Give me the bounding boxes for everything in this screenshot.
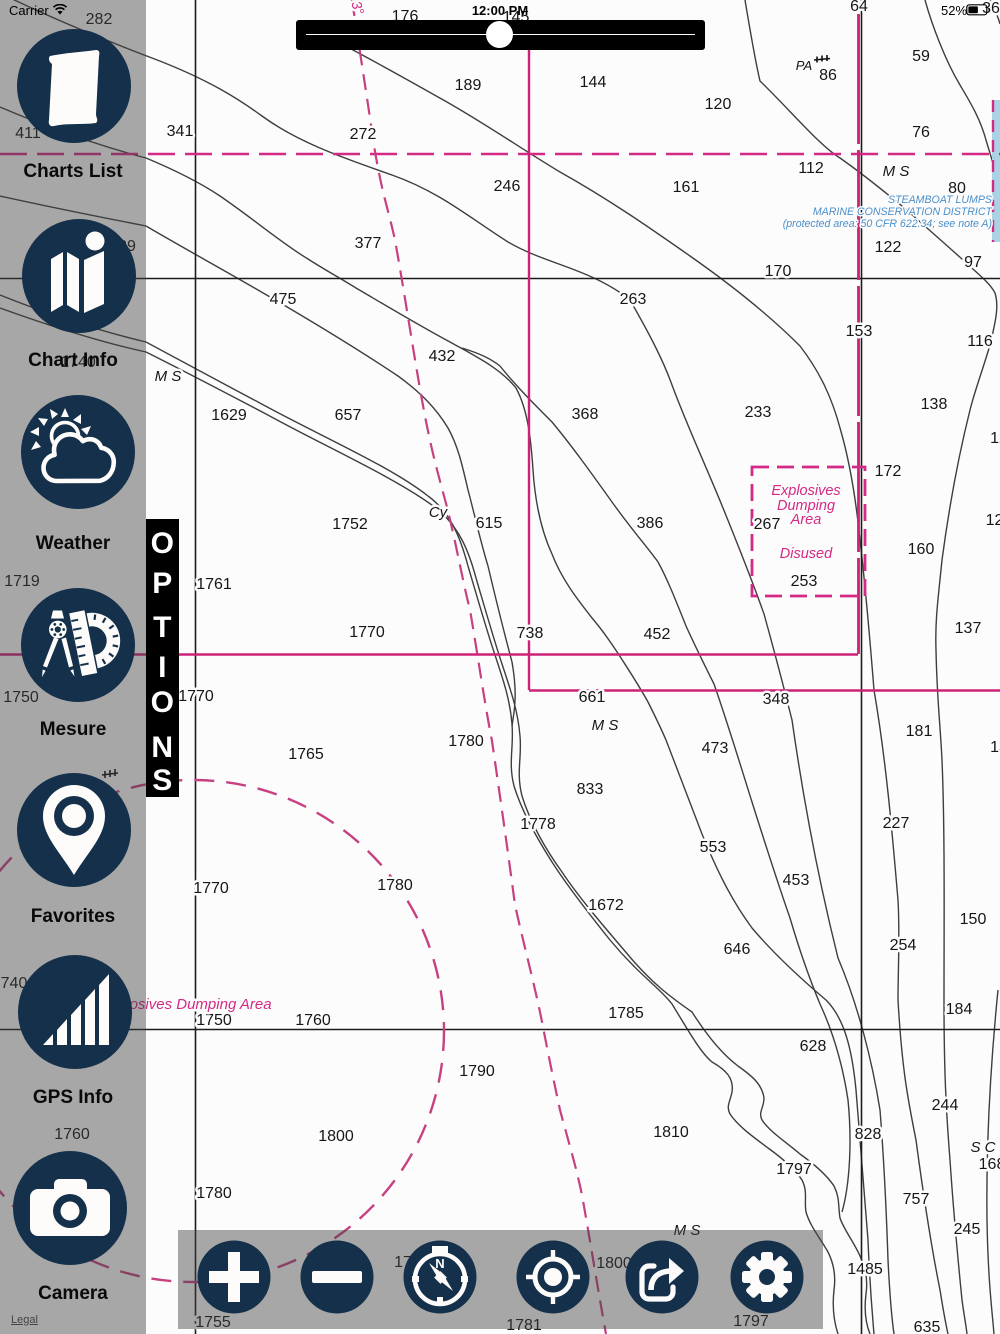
svg-text:N: N (435, 1256, 444, 1271)
